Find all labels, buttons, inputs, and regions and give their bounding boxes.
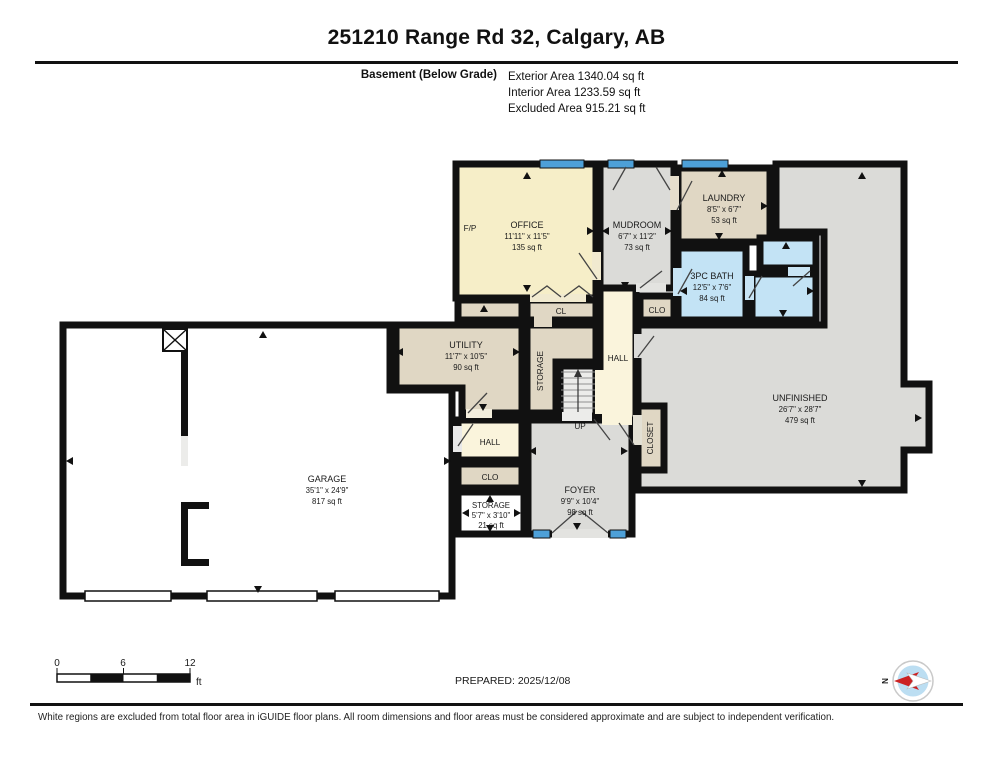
clo-bath-label: CLO — [649, 306, 666, 315]
footer-divider — [30, 703, 963, 706]
hall-upper-label: HALL — [608, 354, 629, 363]
bath-dims: 12'5" x 7'6" — [693, 283, 732, 292]
garage-name: GARAGE — [308, 474, 347, 484]
garage-door-opening — [85, 591, 171, 601]
garage-chase-wall — [181, 502, 209, 509]
north-arrow-icon: N — [881, 661, 933, 701]
office-area: 135 sq ft — [512, 243, 543, 252]
utility-name: UTILITY — [449, 340, 483, 350]
room-office — [456, 164, 596, 298]
post-icon — [163, 329, 187, 351]
clo-lower-label: CLO — [482, 473, 499, 482]
mudroom-dims: 6'7" x 11'2" — [618, 232, 656, 241]
storage-small-area: 21 sq ft — [478, 521, 504, 530]
office-name: OFFICE — [511, 220, 544, 230]
rooms-layer — [63, 164, 929, 596]
window-icon — [540, 160, 584, 168]
garage-door-opening — [207, 591, 317, 601]
garage-door-opening — [335, 591, 439, 601]
foyer-name: FOYER — [564, 485, 596, 495]
compass-n-label: N — [881, 678, 890, 684]
cl-label: CL — [556, 307, 567, 316]
floorplan-page: 251210 Range Rd 32, Calgary, AB Basement… — [0, 0, 993, 768]
floor-plan-svg: OFFICE 11'11" x 11'5" 135 sq ft MUDROOM … — [0, 0, 993, 768]
garage-chase-wall — [181, 502, 188, 566]
foyer-area: 98 sq ft — [567, 508, 593, 517]
storage-column-label: STORAGE — [536, 351, 545, 391]
storage-small-dims: 5'7" x 3'10" — [472, 511, 511, 520]
up-label: UP — [574, 422, 586, 431]
utility-area: 90 sq ft — [453, 363, 479, 372]
laundry-area: 53 sq ft — [711, 216, 737, 225]
bath-name: 3PC BATH — [690, 271, 733, 281]
prepared-date: PREPARED: 2025/12/08 — [455, 675, 571, 687]
garage-chase-wall — [181, 559, 209, 566]
room-bath-nook-top — [760, 238, 816, 268]
utility-dims: 11'7" x 10'5" — [445, 352, 487, 361]
window-icon — [533, 530, 550, 538]
garage-dims: 35'1" x 24'9" — [306, 486, 349, 495]
garage-area: 817 sq ft — [312, 497, 343, 506]
unfinished-dims: 26'7" x 28'7" — [779, 405, 822, 414]
disclaimer-text: White regions are excluded from total fl… — [38, 712, 958, 723]
mudroom-area: 73 sq ft — [624, 243, 650, 252]
scale-bar: 0 6 12 ft — [54, 658, 202, 688]
laundry-dims: 8'5" x 6'7" — [707, 205, 741, 214]
scale-tick-12: 12 — [184, 658, 196, 669]
unfinished-area: 479 sq ft — [785, 416, 816, 425]
scale-unit: ft — [196, 677, 202, 688]
window-icon — [608, 160, 634, 168]
storage-small-name: STORAGE — [472, 501, 510, 510]
unfinished-name: UNFINISHED — [772, 393, 828, 403]
laundry-name: LAUNDRY — [703, 193, 746, 203]
bath-area: 84 sq ft — [699, 294, 725, 303]
hall-lower-label: HALL — [480, 438, 501, 447]
mudroom-name: MUDROOM — [613, 220, 662, 230]
window-icon — [682, 160, 728, 168]
room-closet-strip — [458, 300, 522, 320]
foyer-dims: 9'9" x 10'4" — [561, 497, 600, 506]
closet-label: CLOSET — [646, 422, 655, 455]
office-dims: 11'11" x 11'5" — [504, 232, 550, 241]
fireplace-label: F/P — [464, 224, 477, 233]
scale-tick-0: 0 — [54, 658, 60, 669]
window-icon — [610, 530, 626, 538]
scale-tick-6: 6 — [120, 658, 126, 669]
